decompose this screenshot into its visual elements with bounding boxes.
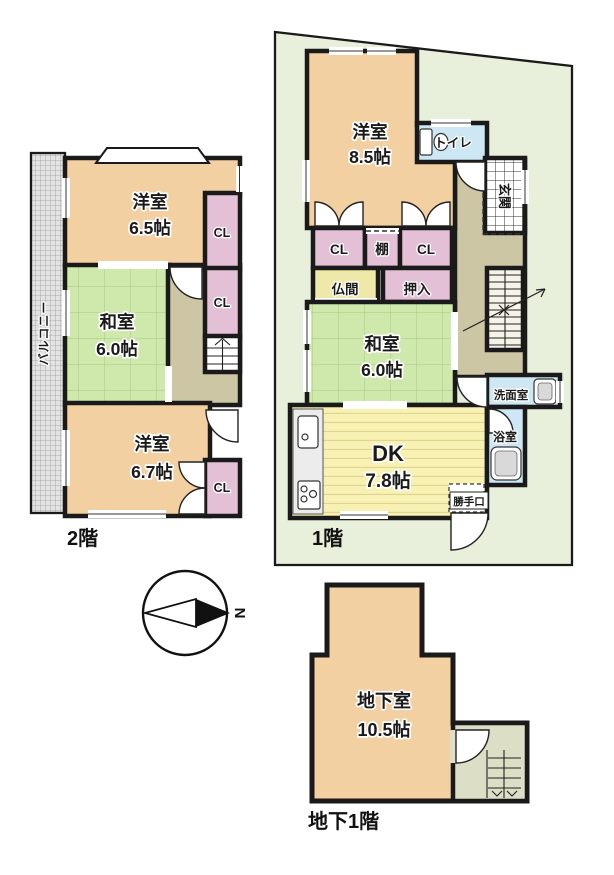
label-basement: 地下1階: [308, 810, 379, 833]
label-closet2-2f: CL: [214, 296, 231, 310]
floorplan-drawing: 洋室 8.5帖 トイレ 玄関 CL 棚 CL 仏間 押入 和室 6.0帖 DK …: [0, 0, 614, 875]
label-cellar-name: 地下室: [357, 690, 411, 711]
label-washroom: 洗面室: [494, 388, 529, 402]
label-west2-2f-size: 6.7帖: [131, 462, 173, 482]
label-west1-2f-name: 洋室: [133, 192, 168, 212]
label-closet1-2f: CL: [214, 226, 231, 240]
label-japanese-2f-size: 6.0帖: [96, 339, 138, 359]
label-balcony: バルコニー: [37, 301, 51, 366]
label-shelf: 棚: [375, 241, 389, 257]
label-backdoor: 勝手口: [453, 495, 485, 508]
room-opening: [165, 366, 172, 402]
label-floor1: 1階: [312, 527, 343, 550]
label-japanese-1f-size: 6.0帖: [361, 360, 403, 380]
label-toilet: トイレ: [434, 136, 472, 150]
label-bathroom: 浴室: [493, 429, 517, 444]
room-opening: [98, 261, 168, 269]
label-floor2: 2階: [67, 527, 98, 550]
compass-north-label: N: [231, 608, 248, 619]
stove-burner-icon: [301, 486, 307, 492]
kitchen-sink-icon: [298, 416, 318, 448]
sliding-door-opening: [451, 312, 458, 370]
label-japanese-1f-name: 和室: [365, 334, 400, 354]
label-cellar-size: 10.5帖: [357, 719, 410, 740]
room-opening: [343, 401, 407, 409]
label-altar: 仏間: [332, 282, 359, 297]
stove-burner-icon: [301, 496, 307, 502]
label-closet3-2f: CL: [214, 481, 231, 495]
label-entrance: 玄関: [497, 183, 512, 209]
compass-needle-tail: [145, 599, 196, 627]
label-west-1f-name: 洋室: [353, 122, 388, 142]
label-closet1-1f: CL: [330, 242, 348, 257]
label-futon-closet: 押入: [404, 281, 431, 297]
compass: N: [143, 571, 248, 655]
label-west-1f-size: 8.5帖: [349, 147, 391, 167]
toilet-tank-icon: [420, 129, 432, 155]
kitchen-faucet-icon: [302, 434, 308, 440]
label-japanese-2f-name: 和室: [100, 312, 135, 332]
bathtub-inner-icon: [495, 451, 517, 476]
washbasin-bowl-icon: [538, 383, 552, 400]
label-closet2-1f: CL: [417, 242, 435, 257]
label-west2-2f-name: 洋室: [135, 434, 170, 454]
bay-window: [96, 148, 209, 163]
label-dk-size: 7.8帖: [365, 469, 410, 492]
stove-burner-icon: [310, 491, 317, 498]
label-dk-name: DK: [372, 441, 404, 466]
floorplan-page: 洋室 8.5帖 トイレ 玄関 CL 棚 CL 仏間 押入 和室 6.0帖 DK …: [0, 0, 614, 875]
room-japanese-2f: [65, 265, 170, 405]
label-west1-2f-size: 6.5帖: [129, 218, 171, 238]
